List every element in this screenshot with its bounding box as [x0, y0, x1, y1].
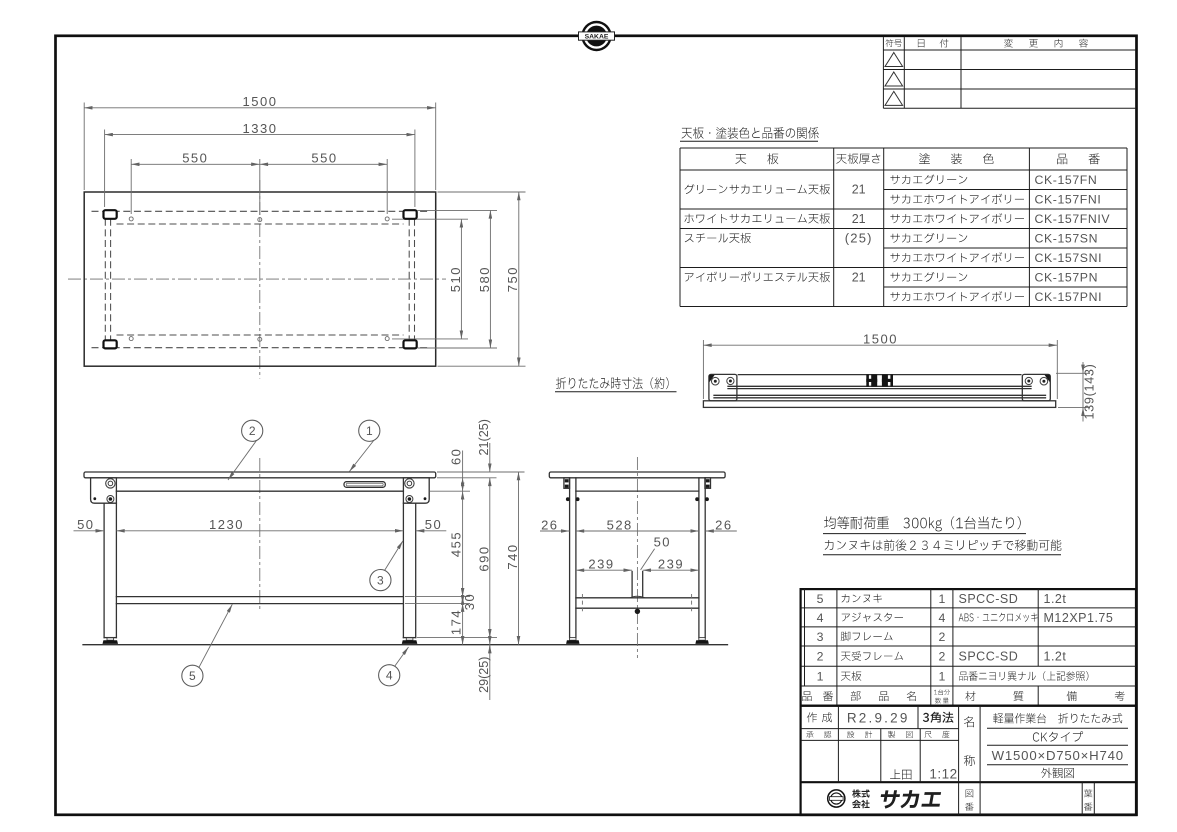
svg-text:550: 550	[182, 151, 208, 166]
svg-text:CK-157FN: CK-157FN	[1035, 173, 1098, 187]
svg-text:1: 1	[817, 670, 824, 684]
svg-text:1: 1	[938, 592, 945, 606]
svg-text:1500: 1500	[863, 332, 898, 347]
svg-text:M12XP1.75: M12XP1.75	[1044, 611, 1114, 625]
svg-text:3: 3	[377, 573, 384, 587]
svg-text:1.2t: 1.2t	[1044, 650, 1067, 664]
svg-text:528: 528	[607, 517, 633, 532]
svg-text:5: 5	[189, 669, 196, 683]
svg-text:CK-157FNIV: CK-157FNIV	[1035, 212, 1111, 226]
svg-text:CK-157SNI: CK-157SNI	[1035, 251, 1103, 265]
svg-text:5: 5	[817, 592, 824, 606]
svg-text:690: 690	[476, 545, 491, 571]
svg-text:1500: 1500	[243, 94, 278, 109]
svg-text:510: 510	[448, 266, 463, 292]
svg-text:60: 60	[448, 448, 463, 465]
svg-text:580: 580	[477, 266, 492, 292]
svg-text:CK-157SN: CK-157SN	[1035, 232, 1099, 246]
svg-text:4: 4	[386, 669, 393, 683]
svg-text:1.2t: 1.2t	[1044, 592, 1067, 606]
svg-text:29(25): 29(25)	[477, 656, 491, 692]
svg-text:4: 4	[817, 611, 824, 625]
svg-text:21: 21	[852, 271, 866, 285]
svg-text:750: 750	[505, 266, 520, 292]
svg-text:26: 26	[541, 517, 558, 532]
svg-text:21: 21	[852, 183, 866, 197]
svg-text:239: 239	[658, 557, 684, 572]
svg-text:139(143): 139(143)	[1083, 363, 1097, 419]
svg-text:1330: 1330	[243, 121, 278, 136]
svg-text:550: 550	[311, 151, 337, 166]
svg-text:50: 50	[425, 517, 442, 532]
svg-text:21(25): 21(25)	[477, 419, 491, 455]
svg-text:SPCC-SD: SPCC-SD	[959, 592, 1019, 606]
svg-text:50: 50	[77, 517, 94, 532]
svg-text:3: 3	[817, 630, 824, 644]
svg-text:174: 174	[449, 609, 464, 635]
svg-text:W1500×D750×H740: W1500×D750×H740	[992, 748, 1124, 763]
svg-text:CK-157PN: CK-157PN	[1035, 271, 1099, 285]
svg-text:R2.9.29: R2.9.29	[847, 710, 910, 725]
svg-text:2: 2	[249, 424, 256, 438]
svg-text:SPCC-SD: SPCC-SD	[959, 650, 1019, 664]
svg-text:2: 2	[938, 650, 945, 664]
svg-text:740: 740	[505, 543, 520, 569]
svg-text:21: 21	[852, 212, 866, 226]
svg-text:CK-157FNI: CK-157FNI	[1035, 193, 1102, 207]
svg-text:26: 26	[715, 517, 732, 532]
svg-text:4: 4	[938, 611, 945, 625]
svg-text:SAKAE: SAKAE	[585, 34, 609, 41]
svg-text:30: 30	[462, 593, 477, 610]
svg-text:50: 50	[654, 534, 671, 549]
svg-text:2: 2	[817, 650, 824, 664]
svg-text:455: 455	[449, 531, 464, 557]
svg-text:CK-157PNI: CK-157PNI	[1035, 290, 1103, 304]
svg-text:1: 1	[938, 670, 945, 684]
svg-text:(25): (25)	[845, 230, 873, 245]
svg-text:239: 239	[588, 557, 614, 572]
svg-text:1: 1	[366, 424, 373, 438]
svg-text:1230: 1230	[209, 517, 244, 532]
svg-text:2: 2	[938, 630, 945, 644]
svg-text:1:12: 1:12	[929, 767, 957, 782]
